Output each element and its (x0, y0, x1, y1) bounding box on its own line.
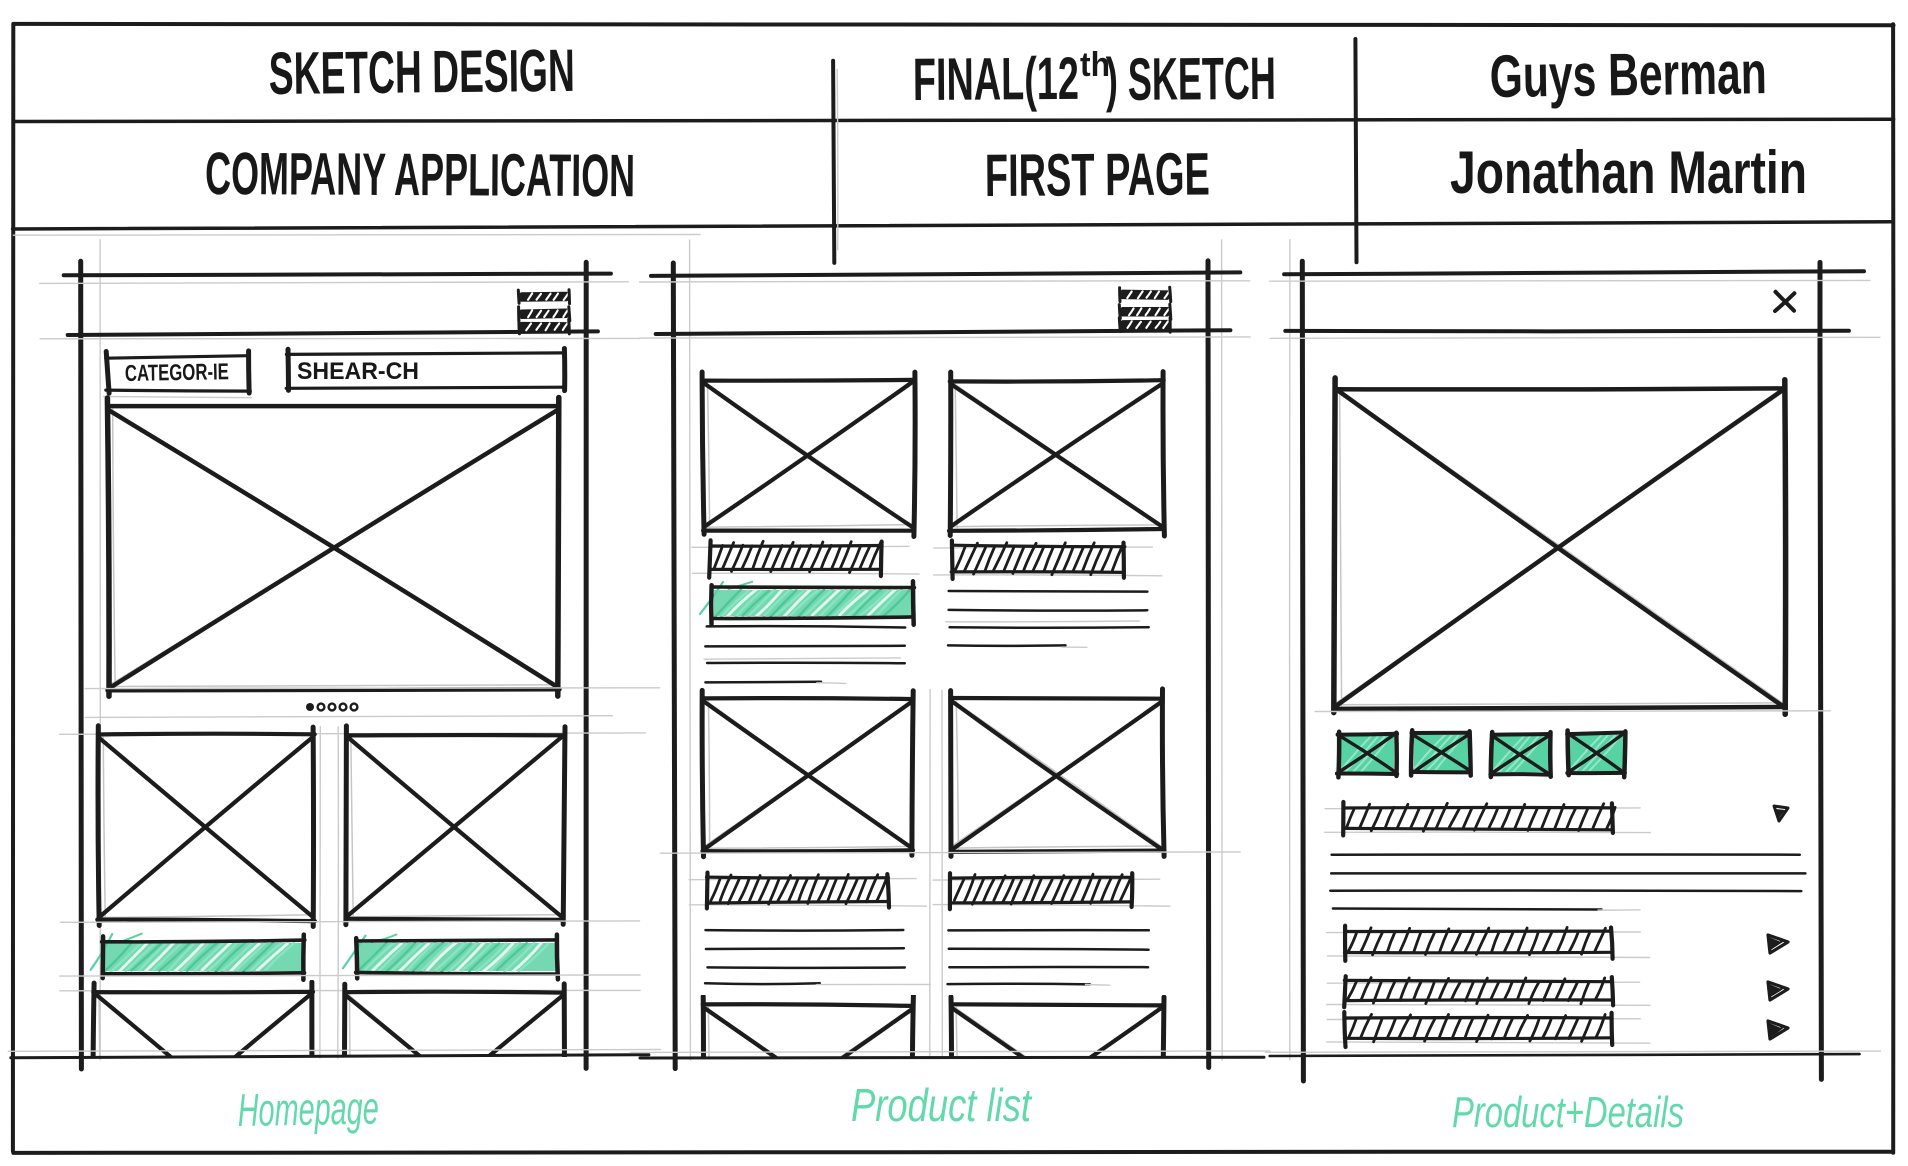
svg-text:SHEAR-CH: SHEAR-CH (297, 358, 419, 385)
svg-text:Product+Details: Product+Details (1452, 1088, 1684, 1137)
svg-text:SKETCH DESIGN: SKETCH DESIGN (268, 37, 575, 107)
svg-text:CATEGOR-IE: CATEGOR-IE (125, 358, 229, 386)
svg-text:Jonathan Martin: Jonathan Martin (1450, 139, 1807, 206)
svg-text:) SKETCH: ) SKETCH (1106, 45, 1276, 113)
svg-text:Guys Berman: Guys Berman (1489, 39, 1767, 110)
svg-text:COMPANY APPLICATION: COMPANY APPLICATION (205, 140, 635, 209)
svg-text:FINAL(12: FINAL(12 (913, 45, 1079, 113)
svg-text:Homepage: Homepage (237, 1082, 379, 1136)
svg-text:FIRST PAGE: FIRST PAGE (985, 140, 1210, 209)
svg-text:Product list: Product list (851, 1079, 1033, 1131)
